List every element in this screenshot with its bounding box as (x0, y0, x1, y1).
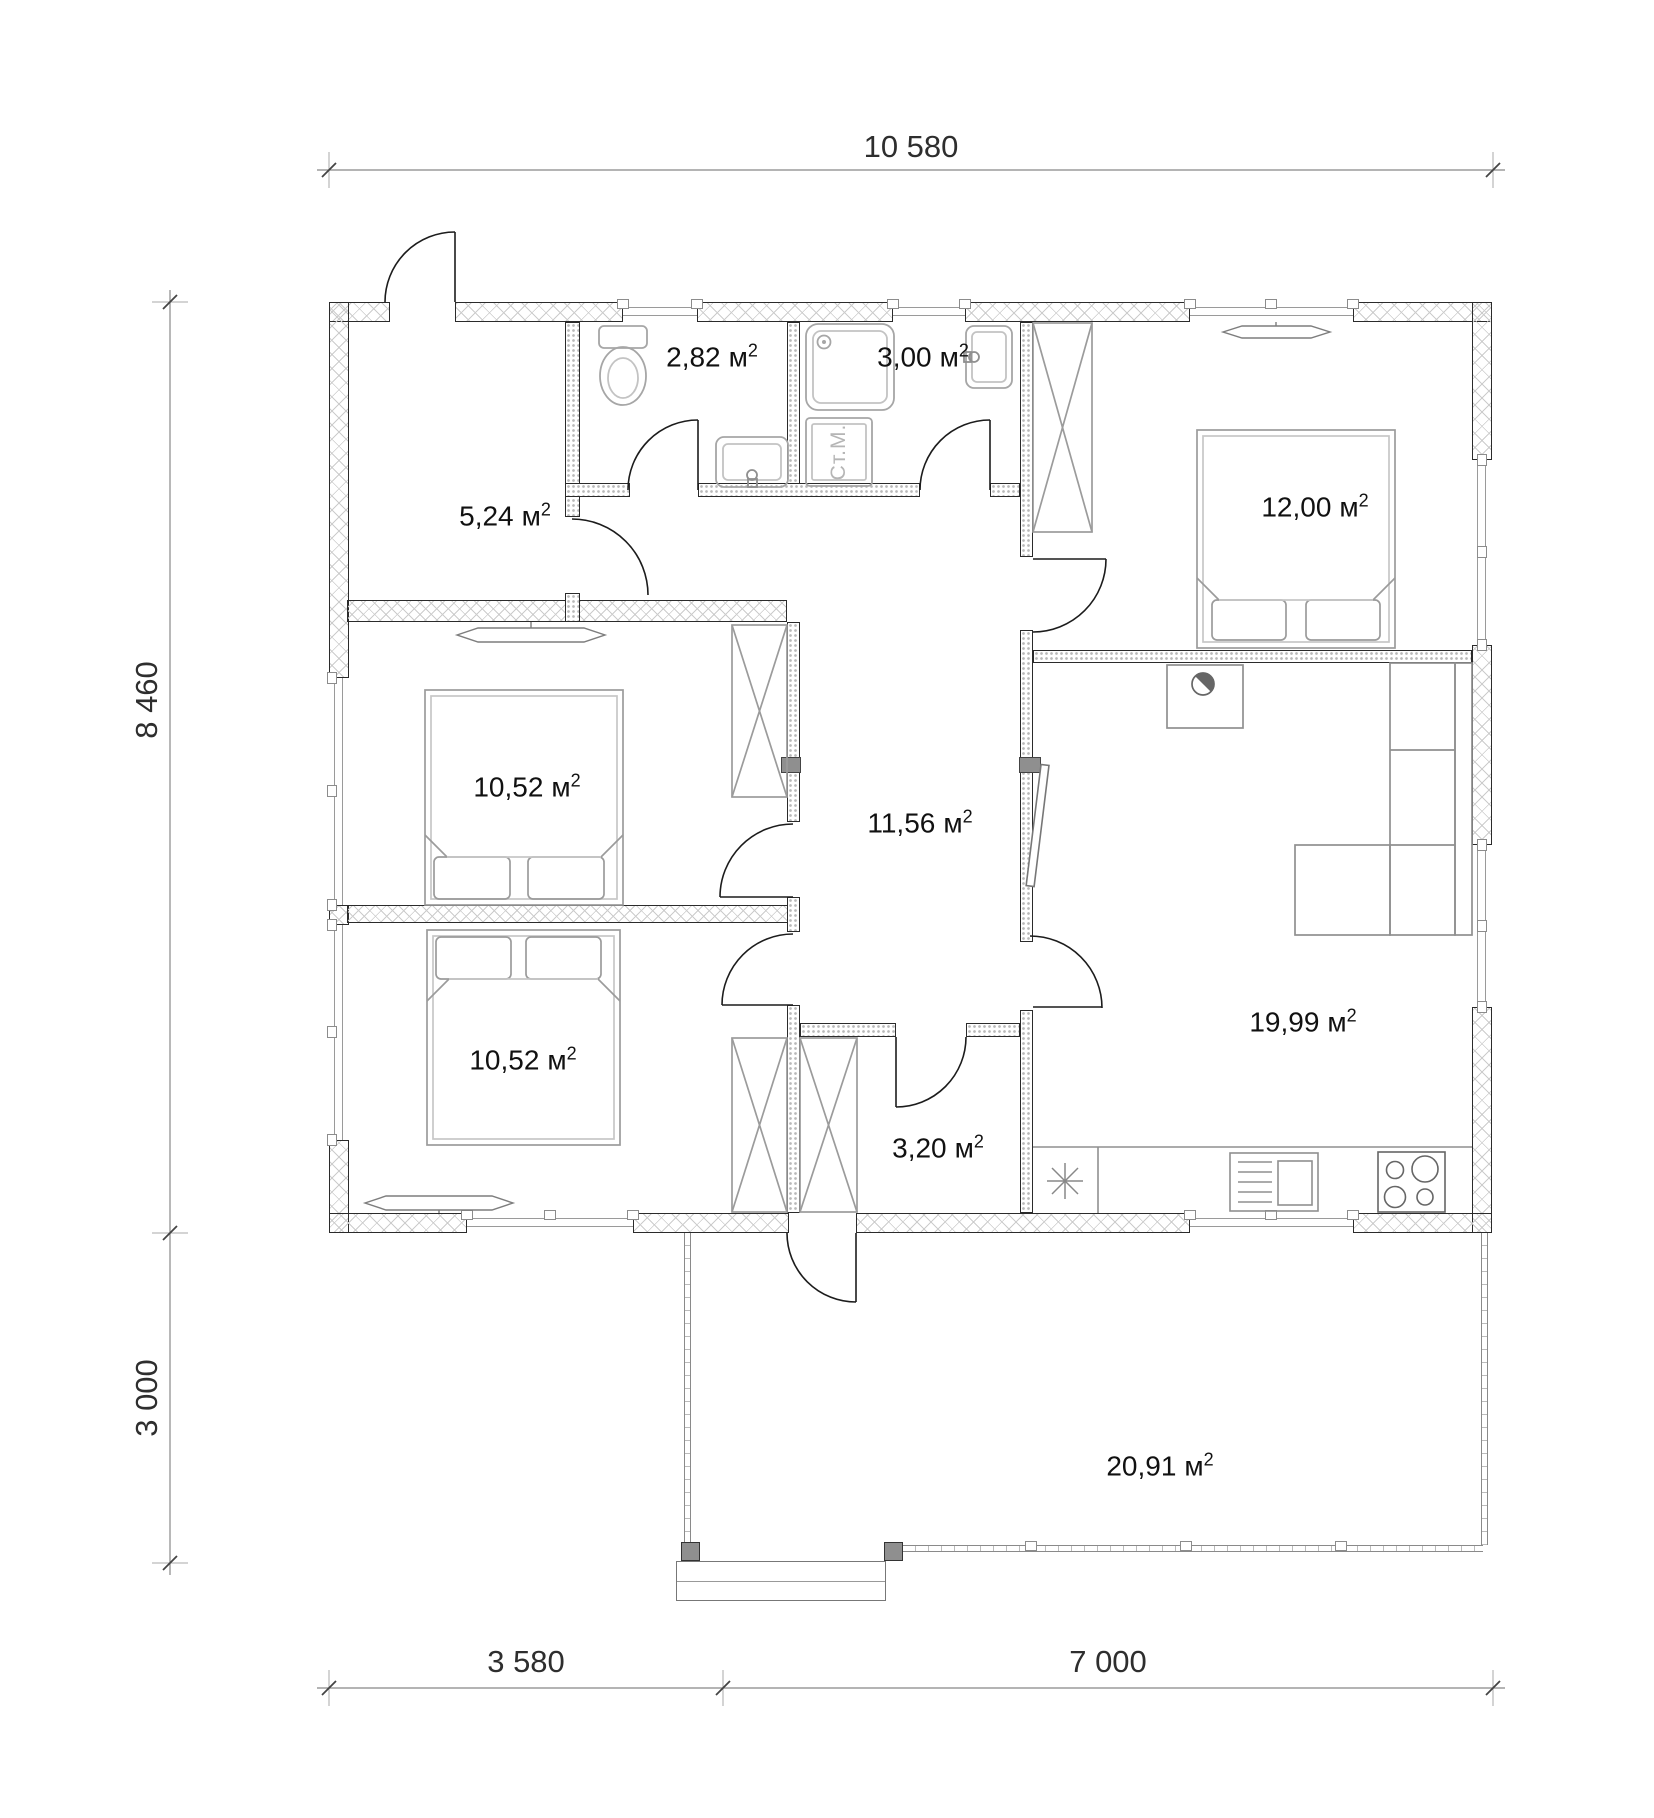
room-label-hall: 5,24м2 (459, 499, 551, 532)
sink-marker (1047, 1163, 1083, 1199)
sink (716, 437, 788, 487)
living-furniture (1167, 663, 1472, 935)
ajar-door-leaf (1026, 765, 1049, 887)
room-label-wc: 2,82м2 (666, 340, 758, 373)
dimension-top: 10 580 (864, 129, 959, 165)
doors (385, 232, 1106, 1302)
wardrobes (732, 323, 1092, 1212)
stove (1378, 1152, 1445, 1212)
hall-lobby-door (572, 519, 648, 595)
oven-unit (1230, 1153, 1318, 1211)
room-label-corridor: 11,56м2 (867, 806, 972, 839)
living-room-door (1030, 936, 1102, 1008)
double-bed (1197, 430, 1395, 648)
wardrobe (1033, 323, 1092, 532)
room-label-bedroom-lower: 10,52м2 (469, 1043, 576, 1076)
storage-door (896, 1037, 966, 1107)
dimension-bottom-left: 3 580 (487, 1644, 565, 1680)
wc-door (628, 420, 698, 490)
tv-panel (365, 1196, 513, 1213)
dimension-left-house: 8 460 (129, 661, 165, 739)
wardrobe (732, 1038, 787, 1212)
entrance-door (385, 232, 455, 302)
toilet (599, 326, 647, 405)
bedroom-upper-door (720, 824, 793, 897)
wardrobe (732, 625, 787, 797)
corner-sofa (1295, 663, 1472, 935)
dimension-left-terrace: 3 000 (129, 1359, 165, 1437)
dimension-ticks (163, 163, 1500, 1695)
room-label-shower: 3,00м2 (877, 340, 969, 373)
radiator (1223, 322, 1330, 338)
room-label-bedroom-upper: 10,52м2 (473, 770, 580, 803)
floor-plan: 5,24м2 2,82м2 3,00м2 12,00м2 10,52м2 11,… (0, 0, 1654, 1818)
room-label-terrace: 20,91м2 (1106, 1449, 1213, 1482)
room-label-living: 19,99м2 (1249, 1005, 1356, 1038)
console-table (1167, 665, 1243, 728)
wardrobe (800, 1038, 857, 1212)
double-bed (427, 930, 620, 1145)
shower-door (920, 420, 990, 490)
tv-panel (457, 622, 605, 642)
plan-linework (0, 0, 1654, 1818)
terrace-door (787, 1233, 856, 1302)
bedroom-right-door (1033, 559, 1106, 632)
bedroom-lower-door (722, 934, 793, 1005)
kitchen (1033, 1147, 1472, 1213)
wall-sink (964, 326, 1012, 388)
room-label-storage: 3,20м2 (892, 1131, 984, 1164)
washing-machine-label: Ст.М. (827, 424, 851, 481)
dimension-lines (152, 152, 1505, 1706)
dimension-bottom-right: 7 000 (1069, 1644, 1147, 1680)
room-label-bedroom-right: 12,00м2 (1261, 490, 1368, 523)
